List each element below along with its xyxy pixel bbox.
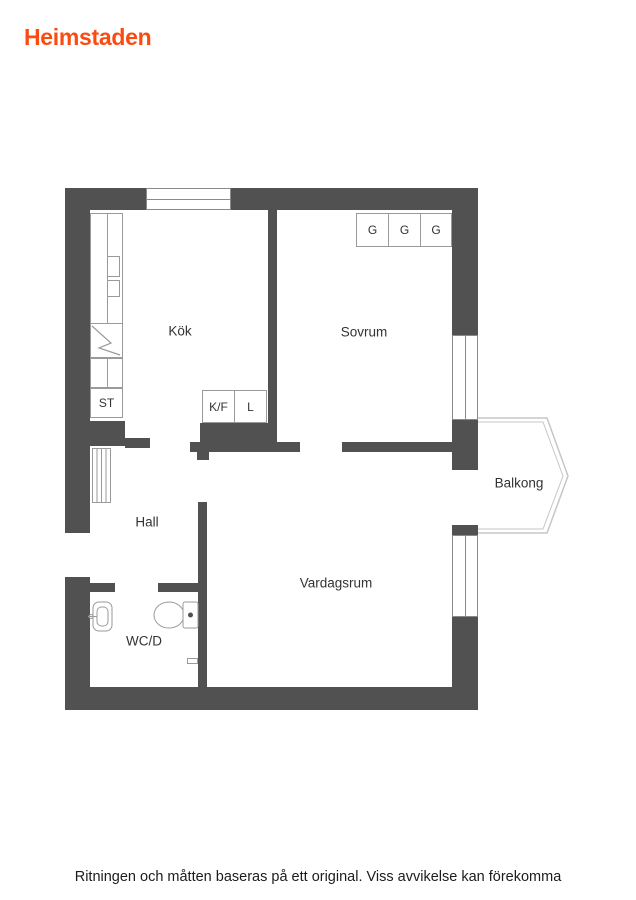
wall-left-upper <box>65 210 90 533</box>
closet-st-label: ST <box>99 396 114 410</box>
kitchen-window <box>146 188 231 210</box>
wall-kitchen-west-arm <box>125 438 150 448</box>
wardrobe-label: G <box>368 223 377 237</box>
wardrobe-g-1: G <box>356 213 389 247</box>
door-handle-mark <box>187 658 198 664</box>
wall-top-right <box>231 188 478 210</box>
wall-right-upper <box>452 210 478 335</box>
page: Heimstaden <box>0 0 636 900</box>
wall-top-left <box>65 188 146 210</box>
stove-icon <box>90 323 123 358</box>
toilet-icon <box>152 598 200 632</box>
wardrobe-label: G <box>400 223 409 237</box>
wall-passage-jamb <box>197 450 209 460</box>
wall-sovrum-south <box>342 442 452 452</box>
wardrobe-label: G <box>431 223 440 237</box>
pantry-l: L <box>234 390 267 423</box>
wall-bottom <box>65 687 478 710</box>
sink-icon <box>88 600 116 634</box>
closet-st: ST <box>90 388 123 418</box>
wall-hall-east <box>198 502 207 687</box>
wardrobe-g-3: G <box>420 213 452 247</box>
radiator-icon <box>92 448 111 504</box>
room-label-bedroom: Sovrum <box>341 325 388 340</box>
livingroom-window <box>452 535 478 617</box>
room-label-livingroom: Vardagsrum <box>300 576 373 591</box>
counter-divider-line <box>107 358 108 388</box>
sink-unit-icon <box>107 256 120 277</box>
wall-kfl-base <box>200 423 277 443</box>
hob-unit-icon <box>107 280 120 297</box>
room-label-kitchen: Kök <box>168 324 191 339</box>
fridge-freezer-label: K/F <box>209 400 228 414</box>
balcony-outline <box>470 406 574 538</box>
room-label-bathroom: WC/D <box>126 634 162 649</box>
room-label-balcony: Balkong <box>495 476 544 491</box>
fridge-freezer-kf: K/F <box>202 390 235 423</box>
disclaimer-text: Ritningen och måtten baseras på ett orig… <box>0 869 636 885</box>
wall-wcd-north-right <box>158 583 200 592</box>
room-label-hall: Hall <box>135 515 158 530</box>
brand-logo: Heimstaden <box>24 24 151 51</box>
wall-wcd-north-left <box>90 583 115 592</box>
wardrobe-g-2: G <box>388 213 421 247</box>
pantry-label: L <box>247 400 254 414</box>
wall-kok-sovrum-divider <box>268 210 277 423</box>
wall-kitchen-west-block <box>65 421 125 446</box>
wall-right-lower <box>452 617 478 710</box>
